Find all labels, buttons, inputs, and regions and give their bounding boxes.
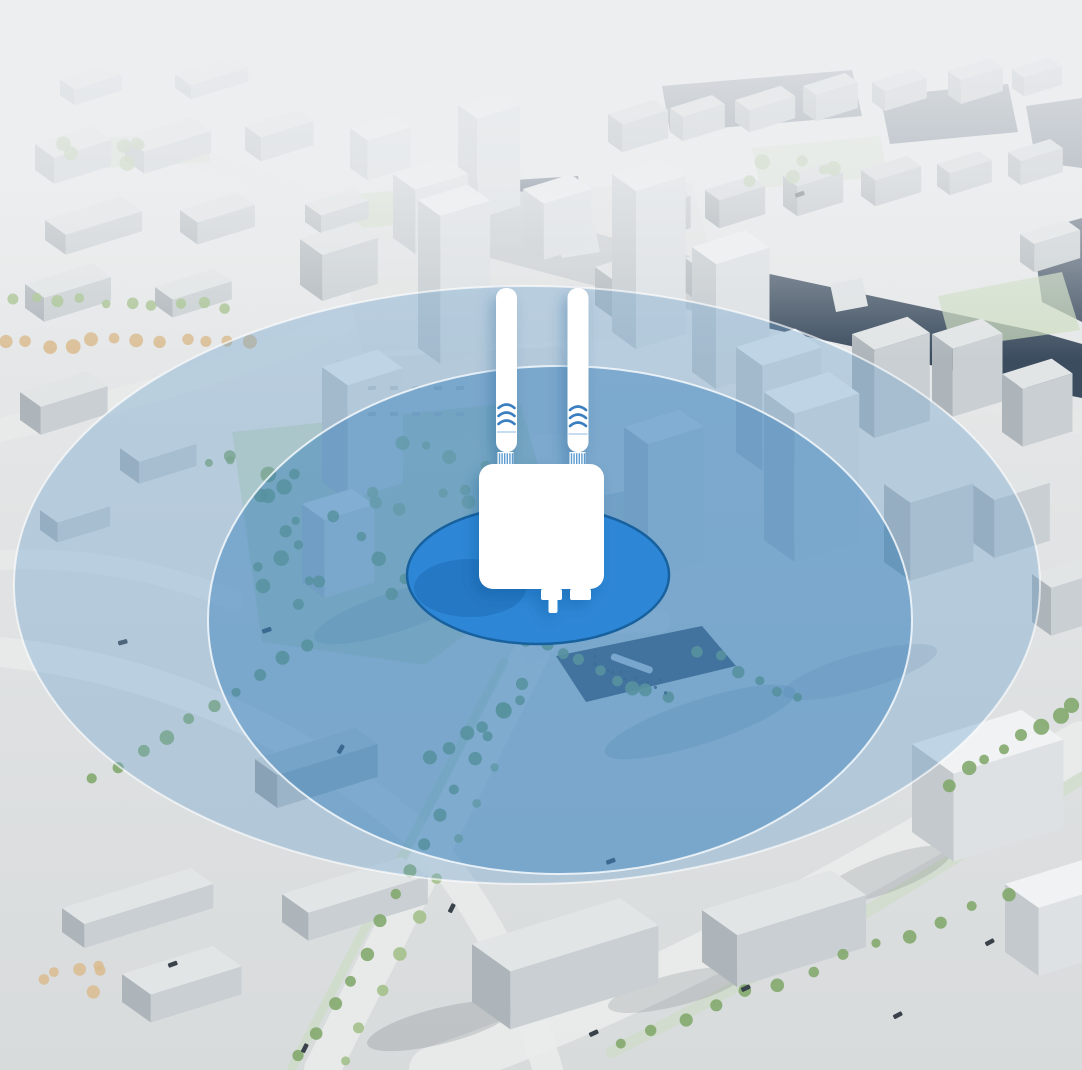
tree [361,948,374,961]
tree [616,1039,626,1049]
tree [1015,729,1027,741]
tree [871,939,880,948]
tree [310,1027,323,1040]
city-coverage-illustration [0,0,1082,1070]
tree [1002,888,1015,901]
tree [999,744,1009,754]
tree [94,961,104,971]
tree [645,1025,656,1036]
tree [771,979,785,993]
tree [377,985,388,996]
tree [710,999,722,1011]
tree [809,967,820,978]
tree [391,889,401,899]
tree [374,914,387,927]
tree [935,917,947,929]
tree [73,963,86,976]
tree [345,976,356,987]
tree [967,901,977,911]
coverage-scene-svg [0,0,1082,1070]
tree [353,1022,364,1033]
antenna-icon [568,288,589,465]
tree [393,947,407,961]
tree [341,1056,350,1065]
tree [413,910,426,923]
lan-port-icon [570,589,591,600]
tree [962,761,976,775]
tree [49,967,59,977]
tree [329,997,342,1010]
device-body [479,464,604,589]
tree [1033,719,1049,735]
tree [39,974,50,985]
tree [979,755,989,765]
tree [943,779,956,792]
tree [1064,698,1079,713]
tree [87,773,97,783]
tree [680,1013,693,1026]
tree [87,985,100,998]
antenna-icon [496,288,517,465]
tree [903,930,917,944]
tree [838,949,849,960]
